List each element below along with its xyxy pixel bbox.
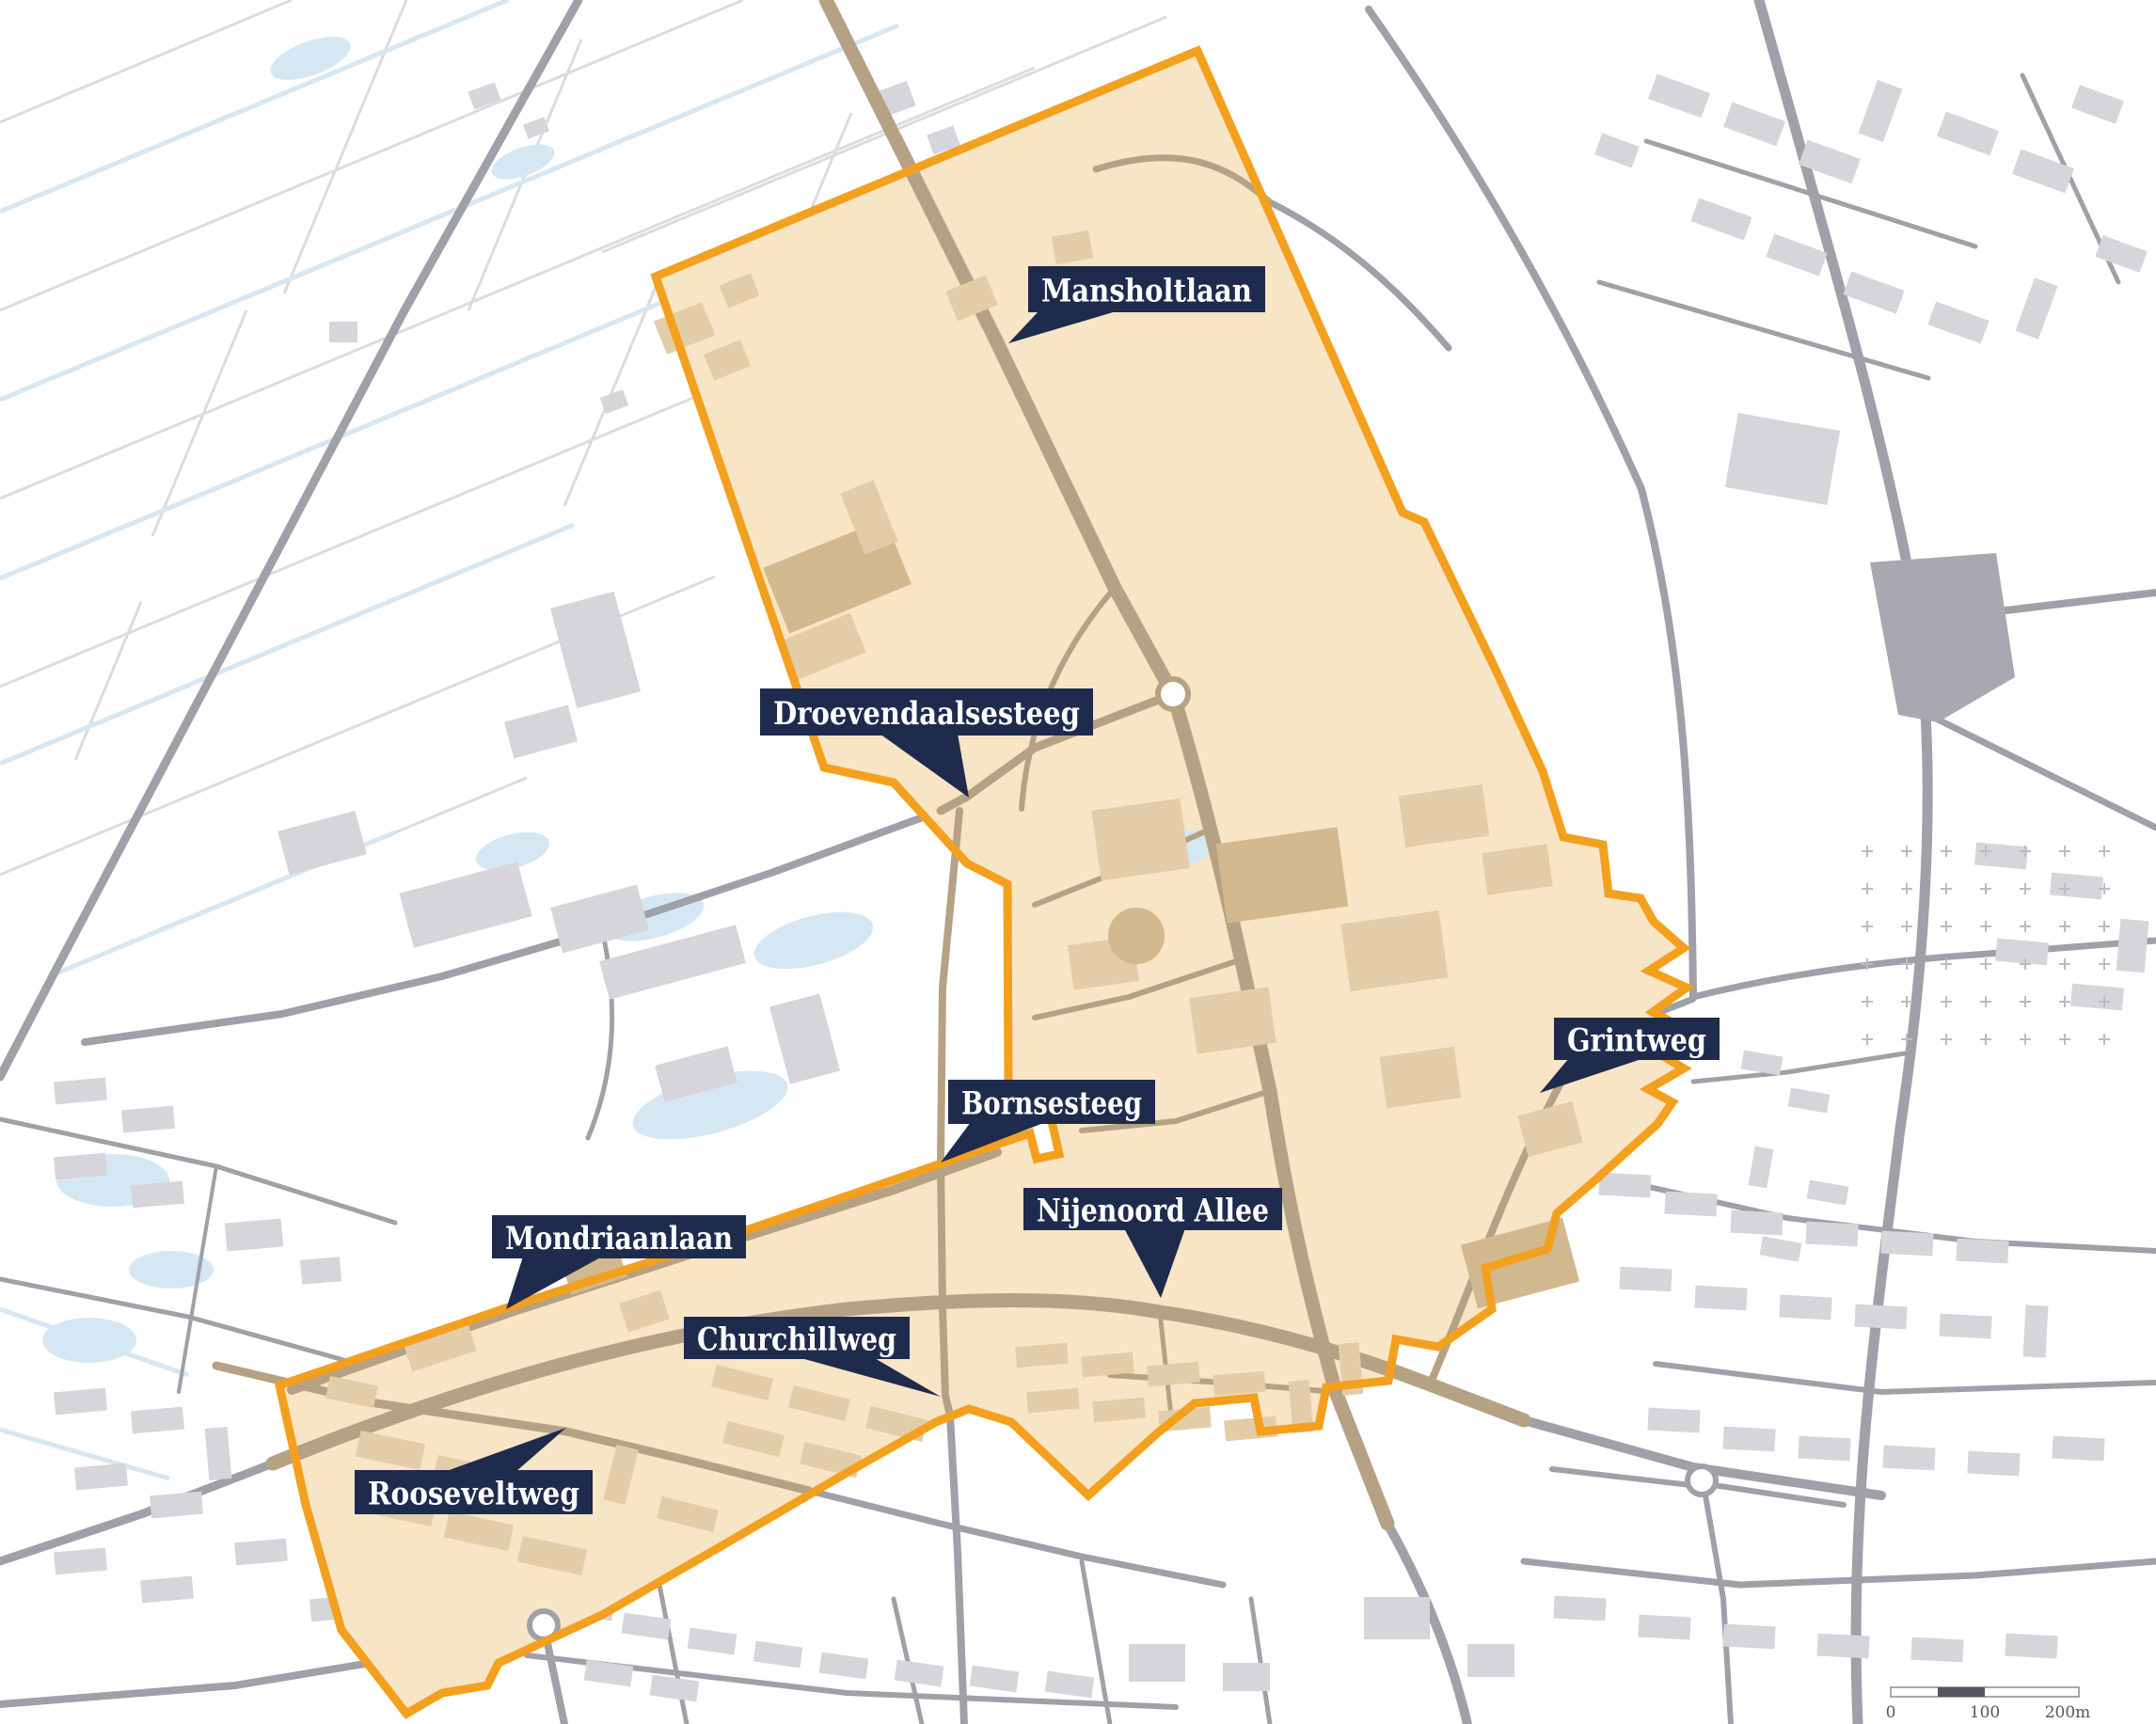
label-text: Rooseveltweg — [368, 1476, 579, 1513]
building — [1995, 939, 2049, 966]
building — [1967, 1451, 2020, 1477]
building — [1880, 1231, 1933, 1257]
building — [1341, 910, 1449, 991]
building — [1805, 1222, 1858, 1247]
building — [1816, 1634, 1869, 1659]
label-text: Nijenoord Allee — [1037, 1193, 1269, 1230]
map-canvas: MansholtlaanDroevendaalsesteegGrintwegBo… — [0, 0, 2156, 1724]
building — [2005, 1634, 2057, 1659]
building — [1694, 1286, 1747, 1311]
building — [1722, 1624, 1775, 1650]
building — [150, 1492, 203, 1519]
building — [1798, 1436, 1850, 1462]
pond — [42, 1318, 136, 1363]
building — [2023, 1305, 2049, 1357]
building — [2050, 873, 2103, 900]
building — [2116, 919, 2149, 973]
building — [1974, 843, 2028, 870]
building — [1598, 1173, 1651, 1198]
label-text: Droevendaalsesteeg — [773, 695, 1080, 733]
building — [1730, 1210, 1783, 1236]
building — [1467, 1644, 1514, 1677]
building — [2052, 1436, 2104, 1462]
building — [329, 322, 357, 342]
building — [1364, 1597, 1430, 1639]
building — [54, 1388, 107, 1416]
building — [131, 1407, 184, 1434]
label-text: Grintweg — [1567, 1022, 1706, 1060]
building — [1223, 1663, 1270, 1691]
wageningen-campus-map: MansholtlaanDroevendaalsesteegGrintwegBo… — [0, 0, 2156, 1724]
building — [1619, 1267, 1672, 1292]
building — [121, 1106, 175, 1133]
building — [131, 1181, 184, 1209]
label-text: Bornsesteeg — [961, 1085, 1142, 1123]
roundabout-icon — [1688, 1466, 1716, 1495]
building — [2070, 984, 2124, 1011]
building — [1129, 1644, 1185, 1682]
building — [205, 1427, 232, 1480]
building — [1910, 1637, 1963, 1663]
building — [1722, 1427, 1775, 1452]
building — [1189, 987, 1276, 1053]
building — [1664, 1192, 1717, 1217]
building — [1882, 1446, 1935, 1471]
building — [1779, 1295, 1831, 1321]
building — [300, 1257, 341, 1285]
building — [1956, 1239, 2008, 1264]
roundabout-icon — [1158, 679, 1188, 709]
building — [1091, 799, 1190, 880]
building — [54, 1548, 107, 1575]
building — [54, 1153, 107, 1180]
building — [54, 1078, 107, 1105]
building — [225, 1218, 283, 1251]
label-text: Churchillweg — [697, 1321, 896, 1359]
scale-bar-segment — [1938, 1687, 1985, 1697]
label-text: Mondriaanlaan — [505, 1220, 733, 1257]
scale-bar-tick-label: 100 — [1970, 1703, 2000, 1722]
building — [1939, 1314, 1991, 1339]
building — [1380, 1047, 1462, 1109]
building — [140, 1576, 194, 1604]
label-text: Mansholtlaan — [1041, 273, 1252, 310]
building — [234, 1539, 288, 1566]
building — [74, 1463, 128, 1491]
scale-bar-tick-label: 0 — [1886, 1703, 1896, 1722]
building-round — [1108, 908, 1165, 964]
building — [1647, 1408, 1700, 1433]
building — [1854, 1305, 1907, 1330]
building — [1638, 1615, 1690, 1640]
building — [1553, 1596, 1606, 1621]
building — [1216, 827, 1349, 923]
scale-bar-tick-label: 200m — [2045, 1703, 2091, 1722]
